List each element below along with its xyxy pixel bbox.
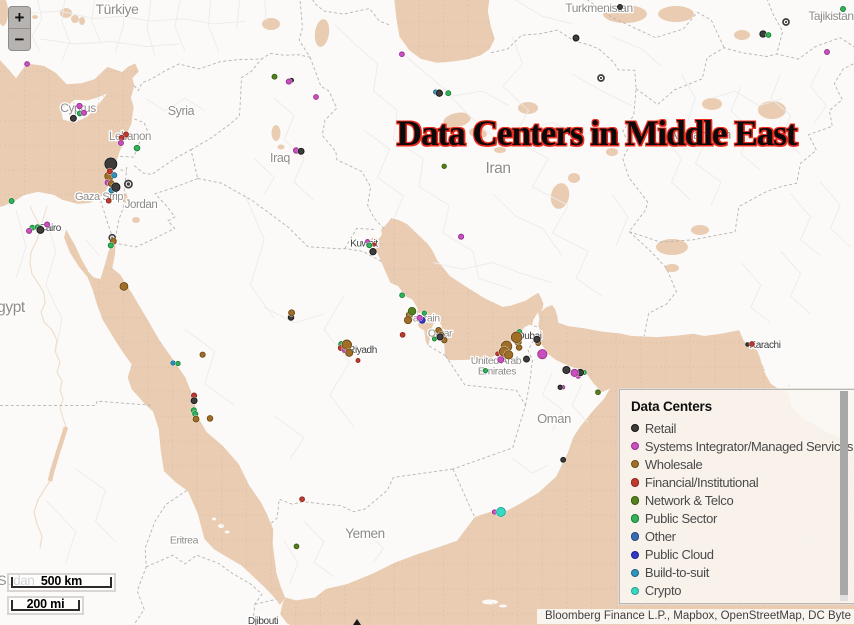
svg-text:Gaza Strip: Gaza Strip	[75, 191, 123, 203]
svg-text:Jordan: Jordan	[125, 199, 158, 211]
svg-text:Tajikistan: Tajikistan	[808, 9, 853, 23]
svg-text:Syria: Syria	[168, 104, 195, 118]
svg-text:Türkiye: Türkiye	[95, 1, 139, 17]
svg-text:Oman: Oman	[537, 411, 571, 426]
svg-text:Eritrea: Eritrea	[170, 535, 199, 547]
svg-text:Djibouti: Djibouti	[248, 616, 278, 625]
svg-text:Iran: Iran	[485, 160, 510, 177]
svg-text:Lebanon: Lebanon	[109, 131, 151, 143]
svg-text:Yemen: Yemen	[345, 526, 385, 541]
svg-text:Iraq: Iraq	[270, 151, 290, 165]
svg-text:Egypt: Egypt	[0, 299, 26, 316]
